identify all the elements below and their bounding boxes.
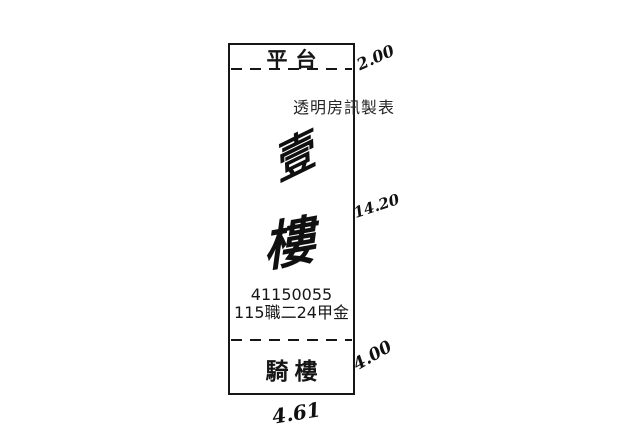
dimension-top-right: 2.00 xyxy=(354,41,397,74)
property-id: 41150055 xyxy=(228,286,355,304)
watermark-text: 透明房訊製表 xyxy=(293,94,395,118)
dimension-bottom-width: 4.61 xyxy=(270,397,322,428)
dimension-middle-right: 14.20 xyxy=(351,190,401,222)
arcade-divider-dashed-line xyxy=(231,339,352,341)
floorplan-sketch: 平台 透明房訊製表 壹 樓 41150055 115職二24甲金 騎樓 2.00… xyxy=(0,0,640,443)
arcade-label: 騎樓 xyxy=(228,352,355,386)
dimension-bottom-right: 4.00 xyxy=(350,337,396,375)
lot-code: 115職二24甲金 xyxy=(228,304,355,322)
property-id-block: 41150055 115職二24甲金 xyxy=(228,286,355,322)
platform-label: 平台 xyxy=(228,44,355,74)
handwritten-floor-char-2: 樓 xyxy=(258,198,317,282)
